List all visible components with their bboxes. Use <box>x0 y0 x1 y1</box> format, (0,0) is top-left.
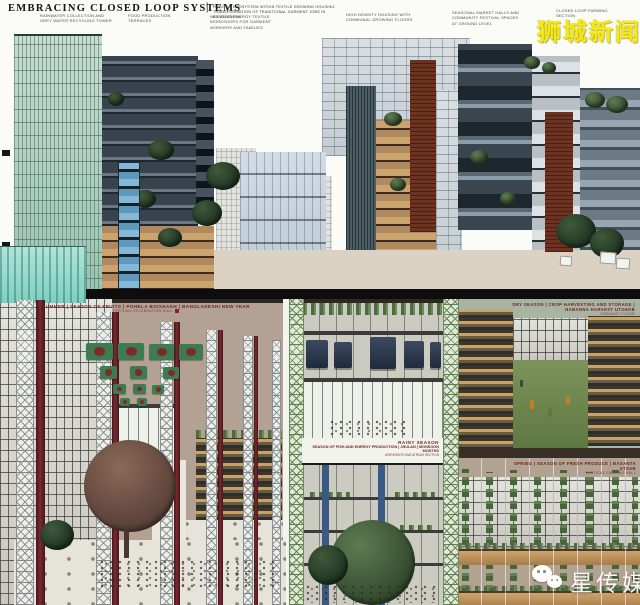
planter-box <box>400 525 435 530</box>
hanging-plants-row <box>302 303 443 315</box>
tree <box>585 92 605 108</box>
bangladesh-flag <box>163 367 179 379</box>
market-canopy <box>560 256 573 267</box>
green-truss-column <box>443 299 459 605</box>
annotation-food-terraces: FOOD PRODUCTION TERRACES <box>128 13 171 24</box>
tree <box>108 92 124 106</box>
bangladesh-flag <box>152 385 164 394</box>
spring-caption: SPRING | SEASON OF FRESH PRODUCE | BASAN… <box>510 461 636 475</box>
tree <box>542 62 556 74</box>
tree <box>524 56 540 69</box>
bangladesh-flag <box>179 344 203 360</box>
tree <box>148 140 174 160</box>
water-lift-shaft <box>118 162 140 292</box>
bangladesh-flag <box>149 344 174 360</box>
worker-figure <box>548 408 552 417</box>
bangladesh-flag <box>137 398 147 406</box>
plaza-people <box>100 560 280 590</box>
planter-box <box>395 492 435 497</box>
hall-people <box>306 585 436 603</box>
news-watermark: 狮城新闻 <box>537 12 640 47</box>
spring-caption-text: SPRING | SEASON OF FRESH PRODUCE | BASAN… <box>510 461 636 471</box>
tree <box>470 150 488 164</box>
tree <box>500 192 516 205</box>
dry-caption-text: DRY SEASON | CROP HARVESTING AND STORAGE… <box>503 302 635 312</box>
annotation-workshops: NET ZERO ENERGY TEXTILE WORKSHOPS FOR GA… <box>210 14 271 30</box>
planter-box <box>310 492 350 497</box>
summer-panel-ceiling-edge <box>112 299 286 303</box>
summer-subcaption-text: FESTIVAL CELEBRATION HALL <box>30 309 262 313</box>
loom-machine <box>370 337 396 369</box>
floor-slab <box>302 331 443 335</box>
bangladesh-flag <box>100 366 117 379</box>
rainy-subcaption-text: WORKSHOP AND ATRIUM SECTION <box>302 453 439 457</box>
atrium-people <box>330 420 410 436</box>
tree-trunk <box>124 528 129 558</box>
bangladesh-flag <box>130 366 147 379</box>
market-canopy <box>616 258 631 270</box>
tree <box>40 520 74 550</box>
loom-machine <box>334 342 352 368</box>
bangladesh-flag <box>133 384 146 394</box>
dry-subcaption-text: GRANARY FLOOR <box>503 312 635 316</box>
level-tag <box>2 150 10 156</box>
rainy-caption-text: SEASON OF FISH AND ENERGY PRODUCTION | J… <box>302 445 439 453</box>
bangladesh-flag <box>113 384 126 394</box>
loom-machine <box>404 341 424 368</box>
bottom-render-strip: SUMMER | SEASON OF FRUITS | POHELA BOISH… <box>0 299 640 605</box>
mid-building-brick-shaft <box>410 60 436 232</box>
loom-machine <box>306 340 328 368</box>
granary-shelf-stack <box>588 316 640 446</box>
bangladesh-flag <box>118 343 144 360</box>
dry-caption: DRY SEASON | CROP HARVESTING AND STORAGE… <box>503 302 635 316</box>
annotation-housing: HIGH DENSITY HOUSING WITH COMMUNAL GROWI… <box>346 12 412 23</box>
annotation-water-cycle: RAINWATER COLLECTION AND GREY WATER RECY… <box>40 13 112 24</box>
maroon-column <box>36 300 45 605</box>
bangladesh-flag <box>86 343 113 360</box>
tree <box>390 178 406 191</box>
annotation-markets: SEASONAL MARKET HALLS AND COMMUNITY FEST… <box>452 10 519 26</box>
title-separator: | <box>206 2 210 13</box>
summer-caption: SUMMER | SEASON OF FRUITS | POHELA BOISH… <box>30 304 262 313</box>
wechat-logo-icon <box>532 565 566 593</box>
tree <box>308 545 348 585</box>
caption-tag <box>175 309 179 313</box>
loom-machine <box>430 342 441 368</box>
ground-market-band <box>214 250 640 290</box>
tree <box>206 162 240 190</box>
right-building-dark-glass <box>458 44 532 230</box>
dry-panel-floor-slab <box>457 448 640 458</box>
courtyard-tree <box>84 440 176 532</box>
tree <box>606 96 628 113</box>
market-canopy <box>600 251 617 264</box>
worker-figure <box>520 380 523 387</box>
worker-figure <box>530 400 534 409</box>
tree <box>192 200 222 226</box>
left-tower-balconies <box>196 60 214 220</box>
tree <box>158 228 182 247</box>
media-watermark: 星传媒 <box>570 564 640 598</box>
dry-panel: DRY SEASON | CROP HARVESTING AND STORAGE… <box>457 299 640 452</box>
green-work-floor <box>513 360 588 452</box>
worker-figure <box>566 396 570 404</box>
spring-subcaption-text: VERTICAL FARMING HALL <box>510 471 636 475</box>
truss-column <box>16 300 34 605</box>
tree <box>384 112 402 126</box>
water-pool <box>0 246 86 303</box>
bangladesh-flag <box>120 398 130 406</box>
presentation-board: EMBRACING CLOSED LOOP SYSTEMS | ROBOTIC … <box>0 0 640 605</box>
board-divider <box>86 289 640 299</box>
granary-shelf-stack <box>457 310 513 450</box>
rainy-caption-band: RAINY SEASON SEASON OF FISH AND ENERGY P… <box>302 438 443 465</box>
